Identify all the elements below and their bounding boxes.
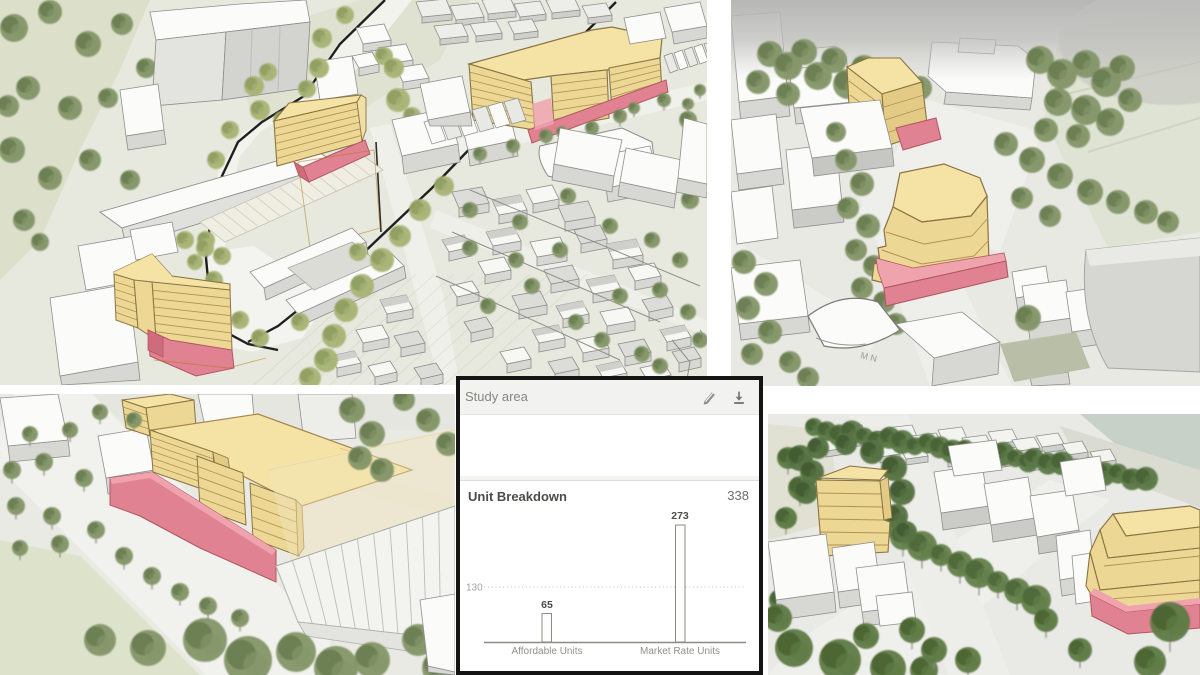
svg-text:65: 65 — [541, 599, 553, 611]
svg-text:273: 273 — [671, 510, 689, 522]
svg-text:130: 130 — [466, 583, 483, 594]
